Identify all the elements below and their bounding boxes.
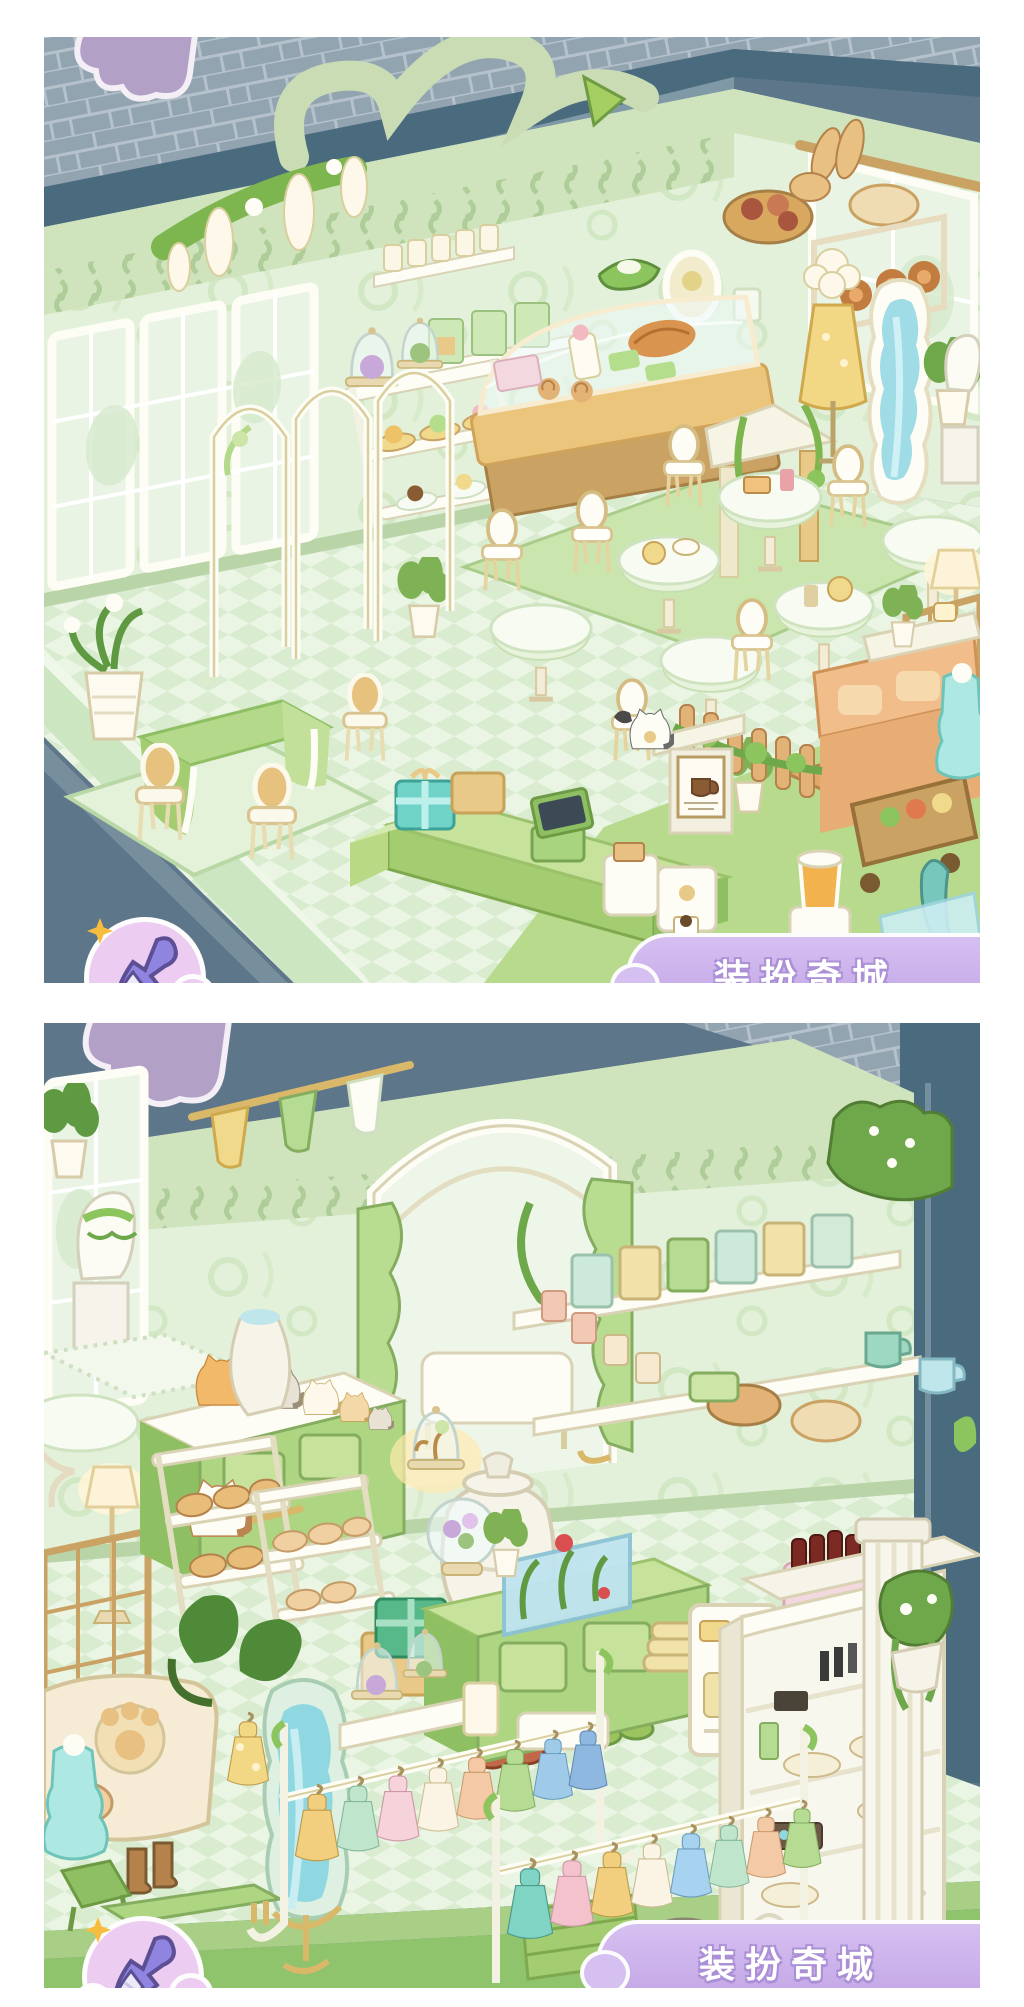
tall-windows[interactable] <box>52 286 314 587</box>
screenshot-collage: 装扮奇城 <box>0 0 1024 2007</box>
cafe-room-screenshot: 装扮奇城 <box>44 37 980 983</box>
blue-tiered-dress[interactable] <box>937 663 980 778</box>
event-banner-button[interactable]: 装扮奇城 <box>596 1920 980 1988</box>
event-banner-label: 装扮奇城 <box>699 1936 883 1988</box>
white-jug <box>231 1309 290 1415</box>
paintbrush-icon <box>101 932 187 983</box>
paintbrush-icon <box>99 1931 185 1988</box>
hedge <box>828 1101 952 1200</box>
cloud-bump <box>580 1950 630 1988</box>
wavy-standing-mirror[interactable] <box>869 280 932 503</box>
cash-register[interactable] <box>530 788 593 861</box>
event-banner-label: 装扮奇城 <box>714 949 898 983</box>
event-banner-button[interactable]: 装扮奇城 <box>626 933 980 983</box>
boutique-room-screenshot: 装扮奇城 <box>44 1023 980 1988</box>
